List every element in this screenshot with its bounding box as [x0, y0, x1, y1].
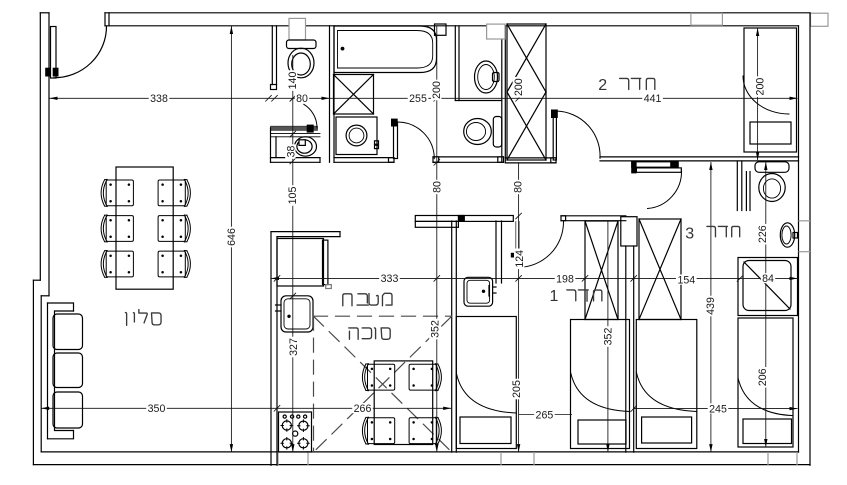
svg-text:124: 124 — [514, 250, 526, 268]
svg-text:84: 84 — [762, 273, 774, 285]
svg-text:352: 352 — [429, 320, 441, 338]
svg-text:245: 245 — [709, 403, 727, 415]
svg-text:105: 105 — [287, 187, 299, 205]
svg-text:265: 265 — [536, 410, 554, 422]
svg-text:352: 352 — [602, 328, 614, 346]
svg-text:266: 266 — [354, 403, 372, 415]
svg-text:200: 200 — [513, 78, 525, 96]
svg-text:327: 327 — [288, 338, 300, 356]
svg-text:3: 3 — [685, 225, 694, 242]
svg-text:439: 439 — [705, 297, 717, 315]
svg-text:154: 154 — [677, 275, 695, 287]
svg-text:226: 226 — [757, 225, 769, 243]
svg-text:2: 2 — [598, 77, 607, 94]
svg-text:338: 338 — [150, 93, 168, 105]
svg-text:200: 200 — [431, 81, 443, 99]
svg-text:198: 198 — [556, 274, 574, 286]
svg-text:205: 205 — [511, 380, 523, 398]
svg-text:441: 441 — [644, 93, 662, 105]
svg-text:80: 80 — [296, 93, 308, 105]
svg-text:140: 140 — [287, 72, 299, 90]
svg-text:1: 1 — [550, 288, 559, 305]
svg-text:333: 333 — [381, 273, 399, 285]
svg-text:646: 646 — [226, 228, 238, 246]
svg-text:206: 206 — [757, 368, 769, 386]
svg-text:255: 255 — [409, 93, 427, 105]
svg-text:38: 38 — [285, 146, 297, 158]
svg-text:80: 80 — [432, 181, 444, 193]
svg-text:350: 350 — [148, 403, 166, 415]
svg-text:200: 200 — [754, 78, 766, 96]
svg-text:80: 80 — [513, 181, 525, 193]
